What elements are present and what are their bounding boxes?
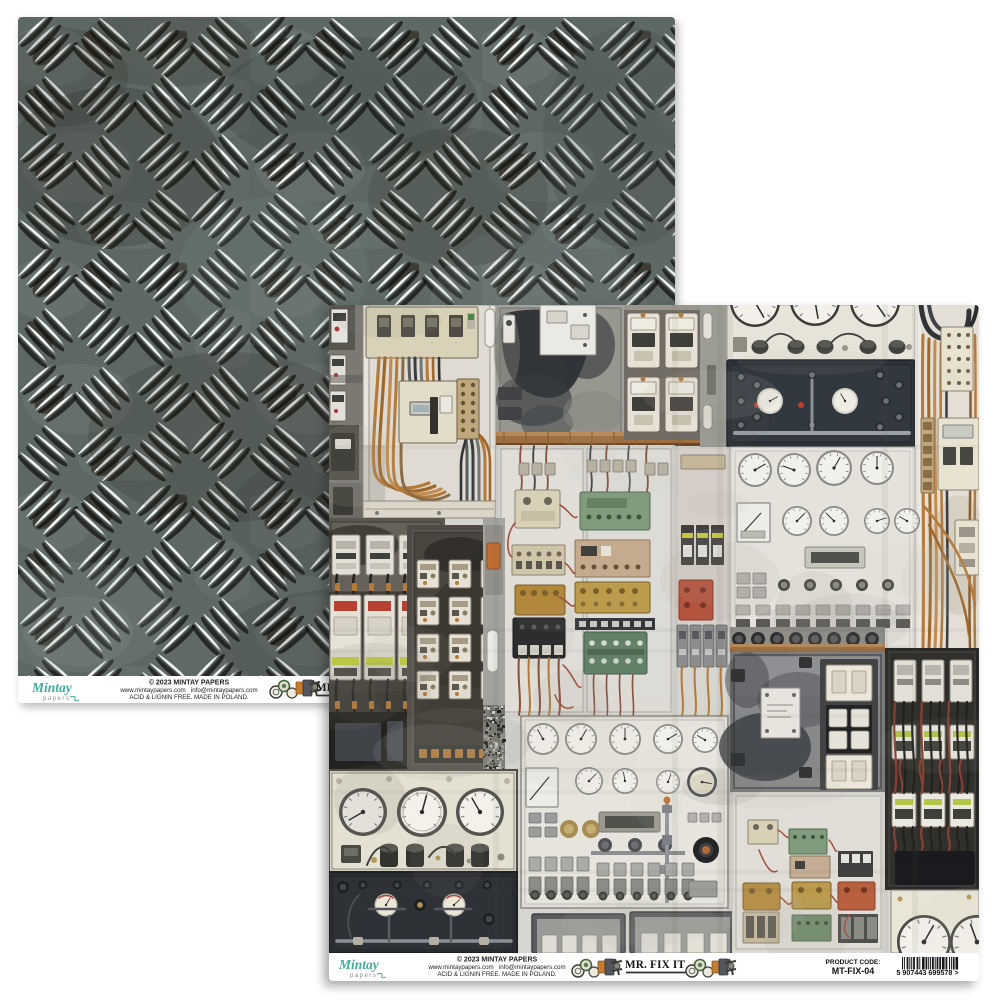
svg-text:5 907443 699578 >: 5 907443 699578 > [896, 968, 958, 977]
svg-text:PRODUCT CODE:: PRODUCT CODE: [826, 959, 881, 966]
svg-text:MT-FIX-04: MT-FIX-04 [832, 966, 875, 976]
svg-text:Mintay: Mintay [338, 957, 380, 972]
svg-text:MR. FIX IT: MR. FIX IT [625, 959, 685, 971]
svg-text:ACID & LIGNIN FREE. MADE IN PO: ACID & LIGNIN FREE. MADE IN POLAND. [437, 971, 557, 978]
svg-text:ACID & LIGNIN FREE. MADE IN PO: ACID & LIGNIN FREE. MADE IN POLAND. [129, 694, 249, 701]
svg-text:papers: papers [350, 973, 377, 979]
svg-text:Mintay: Mintay [31, 680, 73, 695]
svg-text:www.mintaypapers.com info@mi: www.mintaypapers.com info@mintaypapers.c… [427, 964, 565, 971]
svg-text:© 2023 MINTAY PAPERS: © 2023 MINTAY PAPERS [149, 679, 230, 687]
svg-text:© 2023 MINTAY PAPERS: © 2023 MINTAY PAPERS [457, 956, 538, 964]
svg-text:www.mintaypapers.com info@mi: www.mintaypapers.com info@mintaypapers.c… [119, 687, 257, 694]
svg-text:papers: papers [43, 696, 70, 702]
